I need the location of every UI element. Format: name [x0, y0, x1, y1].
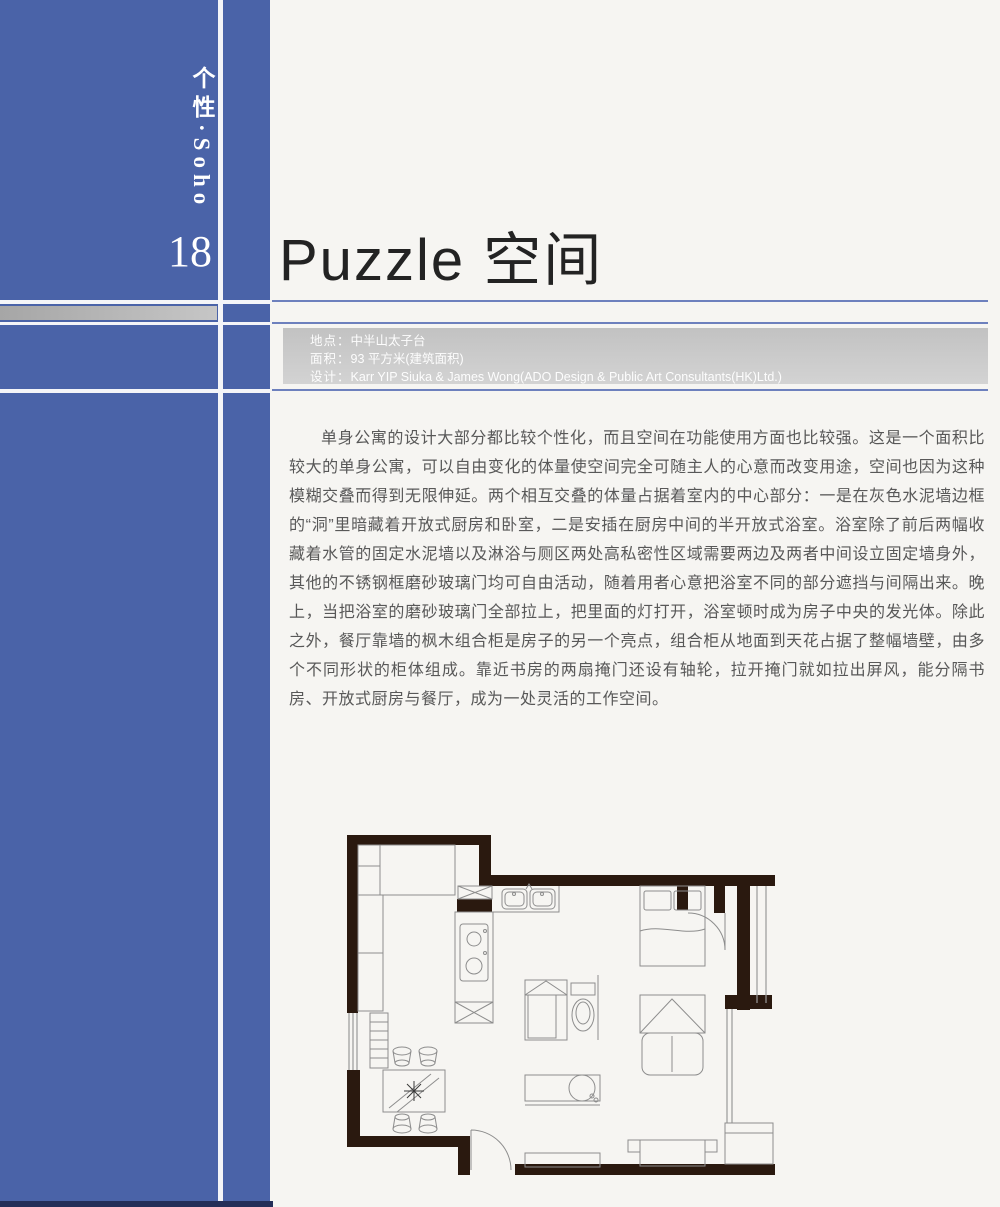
floor-plan-furniture: [358, 845, 773, 1170]
info-row-designer: 设计：Karr YIP Siuka & James Wong(ADO Desig…: [310, 368, 988, 386]
body-paragraph: 单身公寓的设计大部分都比较个性化，而且空间在功能使用方面也比较强。这是一个面积比…: [289, 424, 985, 714]
info-label-designer: 设计：: [310, 370, 351, 384]
info-label-area: 面积：: [310, 352, 351, 366]
rule-white-bottom: [0, 389, 270, 393]
page-number: 18: [140, 230, 212, 274]
floor-plan: [345, 833, 775, 1183]
info-label-location: 地点：: [310, 334, 351, 348]
info-value-area: 93 平方米(建筑面积): [351, 352, 464, 366]
rule-blue-bottom: [272, 389, 988, 391]
sidebar-gray-bar: [0, 306, 217, 320]
page-bottom-edge: [0, 1201, 273, 1207]
info-value-location: 中半山太子台: [351, 334, 426, 348]
sidebar: 个性·Soho 18: [0, 0, 270, 1207]
project-info-box: 地点：中半山太子台 面积：93 平方米(建筑面积) 设计：Karr YIP Si…: [283, 328, 988, 384]
book-page: 个性·Soho 18 Puzzle 空间 地点：中半山太子台 面积：93 平方米…: [0, 0, 1000, 1207]
rule-blue-mid: [272, 322, 988, 324]
floor-plan-walls: [347, 835, 775, 1175]
rule-white-mid: [0, 322, 270, 325]
rule-blue-top: [272, 300, 988, 302]
info-row-location: 地点：中半山太子台: [310, 332, 988, 350]
rule-white-top: [0, 300, 270, 304]
floor-plan-windows: [349, 886, 766, 1123]
page-title: Puzzle 空间: [279, 213, 603, 297]
sidebar-divider-line: [218, 0, 223, 1207]
info-value-designer: Karr YIP Siuka & James Wong(ADO Design &…: [351, 370, 782, 384]
category-label: 个性·Soho: [178, 66, 218, 210]
info-row-area: 面积：93 平方米(建筑面积): [310, 350, 988, 368]
